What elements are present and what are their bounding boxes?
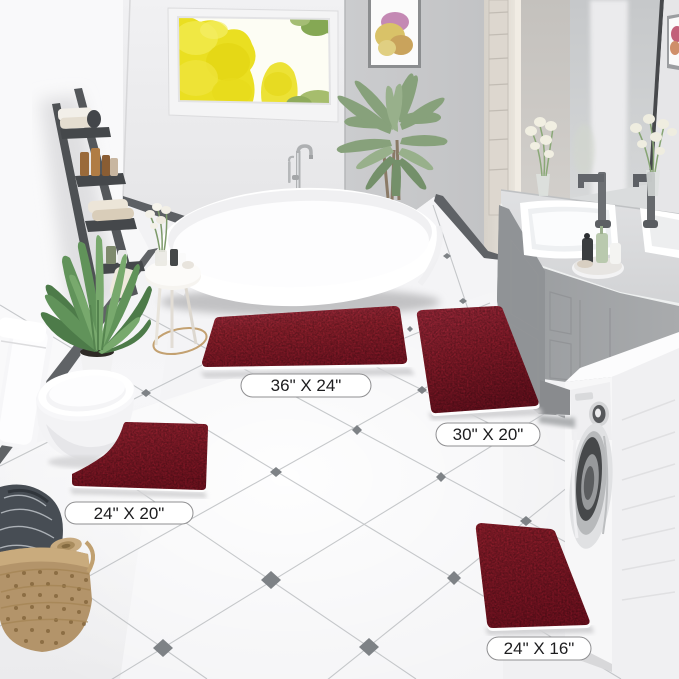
svg-text:24" X 16": 24" X 16"	[504, 639, 575, 658]
svg-text:36" X 24": 36" X 24"	[271, 376, 342, 395]
svg-text:30" X 20": 30" X 20"	[453, 425, 524, 444]
svg-text:24" X 20": 24" X 20"	[94, 504, 165, 523]
